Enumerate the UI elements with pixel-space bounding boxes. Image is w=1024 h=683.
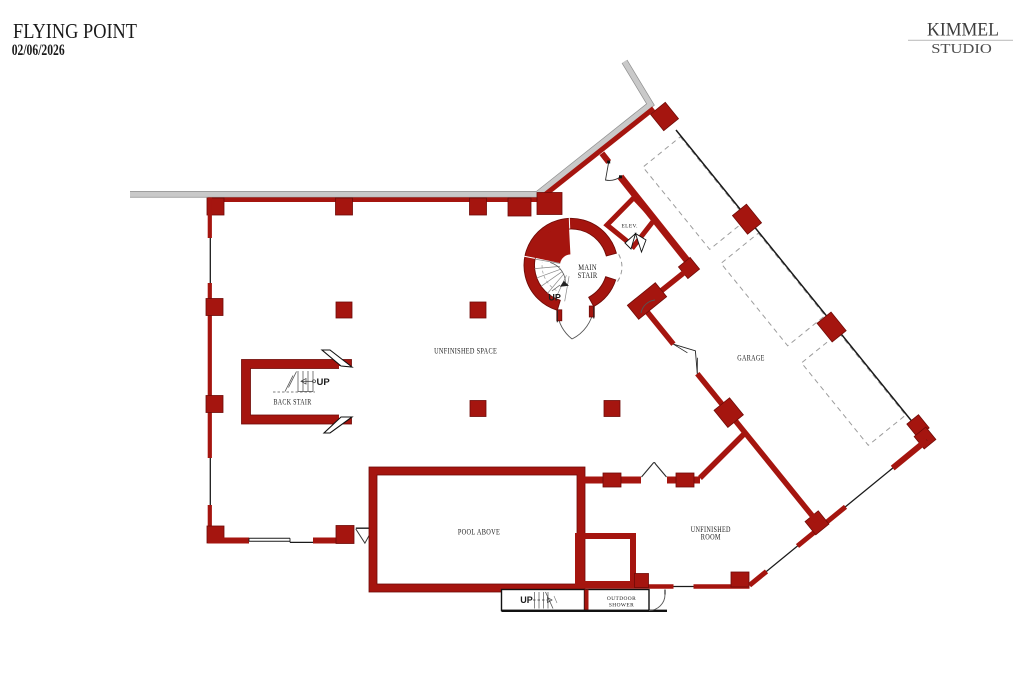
- svg-text:POOL ABOVE: POOL ABOVE: [458, 528, 500, 537]
- svg-text:KIMMEL: KIMMEL: [927, 20, 999, 40]
- svg-text:UP: UP: [520, 595, 533, 605]
- svg-text:UNFINISHED SPACE: UNFINISHED SPACE: [434, 347, 497, 356]
- svg-text:02/06/2026: 02/06/2026: [12, 42, 65, 59]
- svg-text:SHOWER: SHOWER: [609, 603, 634, 609]
- svg-text:UP: UP: [317, 377, 331, 388]
- svg-text:GARAGE: GARAGE: [737, 353, 765, 362]
- svg-text:ELEV.: ELEV.: [621, 224, 637, 230]
- svg-text:STAIR: STAIR: [578, 271, 598, 280]
- svg-text:OUTDOOR: OUTDOOR: [607, 596, 636, 602]
- svg-text:STUDIO: STUDIO: [931, 41, 992, 56]
- svg-text:FLYING POINT: FLYING POINT: [13, 19, 137, 43]
- svg-text:BACK STAIR: BACK STAIR: [274, 398, 312, 407]
- svg-text:UP: UP: [548, 292, 561, 302]
- svg-text:ROOM: ROOM: [701, 533, 721, 542]
